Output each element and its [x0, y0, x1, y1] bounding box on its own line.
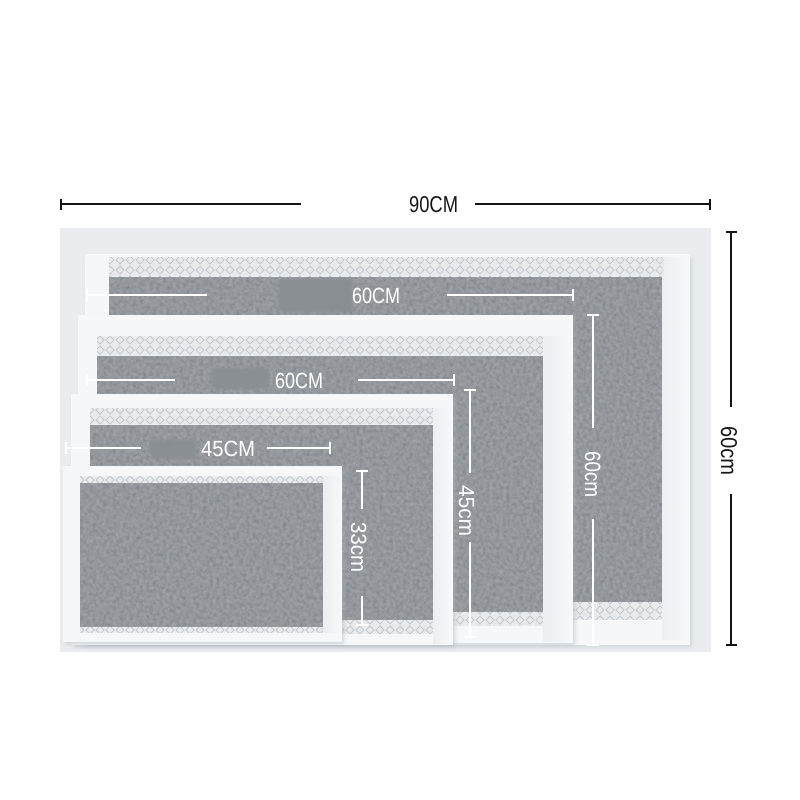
svg-text:90CM: 90CM	[409, 191, 458, 217]
svg-text:60cm: 60cm	[716, 426, 742, 475]
svg-text:45CM: 45CM	[201, 436, 255, 461]
svg-text:60cm: 60cm	[580, 451, 605, 497]
svg-text:60CM: 60CM	[275, 368, 323, 393]
svg-text:45cm: 45cm	[454, 485, 479, 536]
svg-text:33cm: 33cm	[346, 522, 371, 572]
svg-text:60CM: 60CM	[352, 283, 400, 308]
